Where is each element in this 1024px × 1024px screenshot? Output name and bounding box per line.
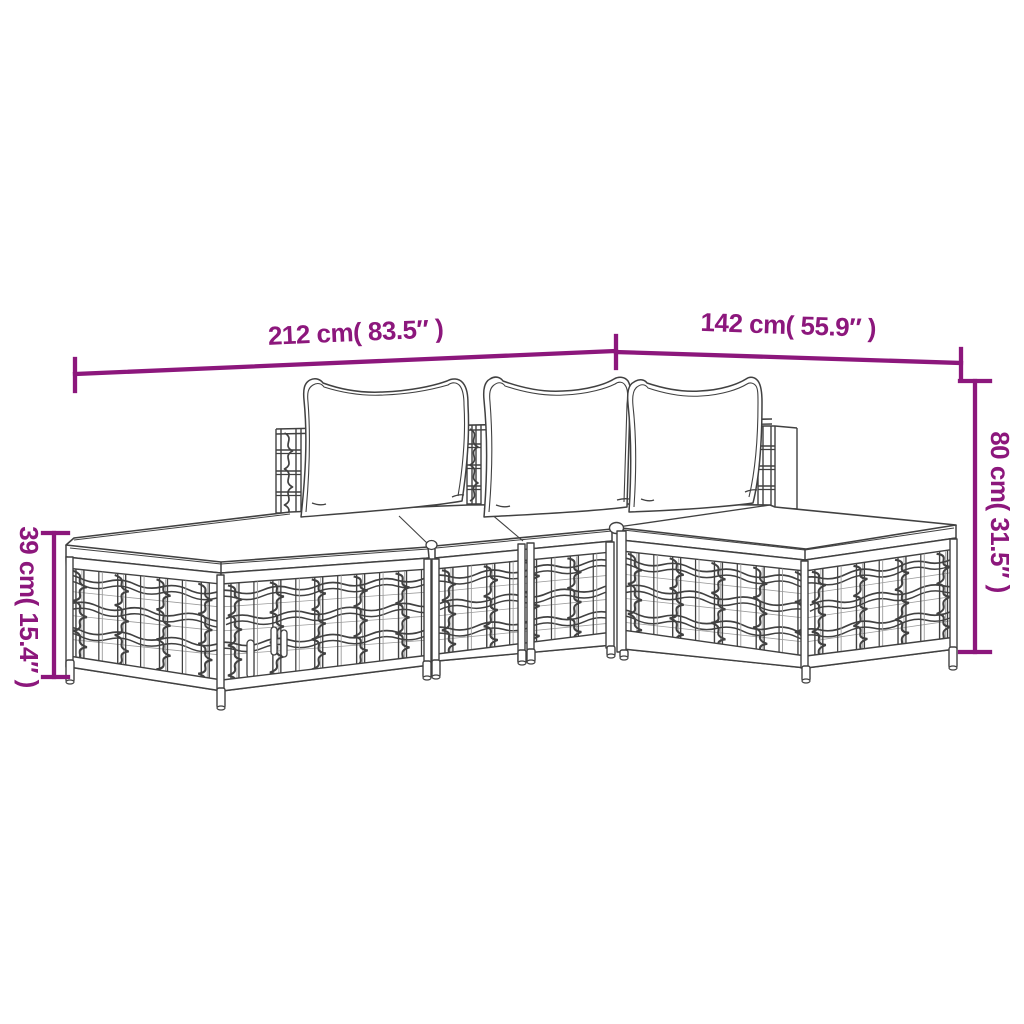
svg-text:80 cm( 31.5″ ): 80 cm( 31.5″ ) xyxy=(985,431,1015,593)
svg-text:39 cm( 15.4″ ): 39 cm( 15.4″ ) xyxy=(14,526,44,688)
svg-text:142 cm( 55.9″ ): 142 cm( 55.9″ ) xyxy=(700,307,876,343)
